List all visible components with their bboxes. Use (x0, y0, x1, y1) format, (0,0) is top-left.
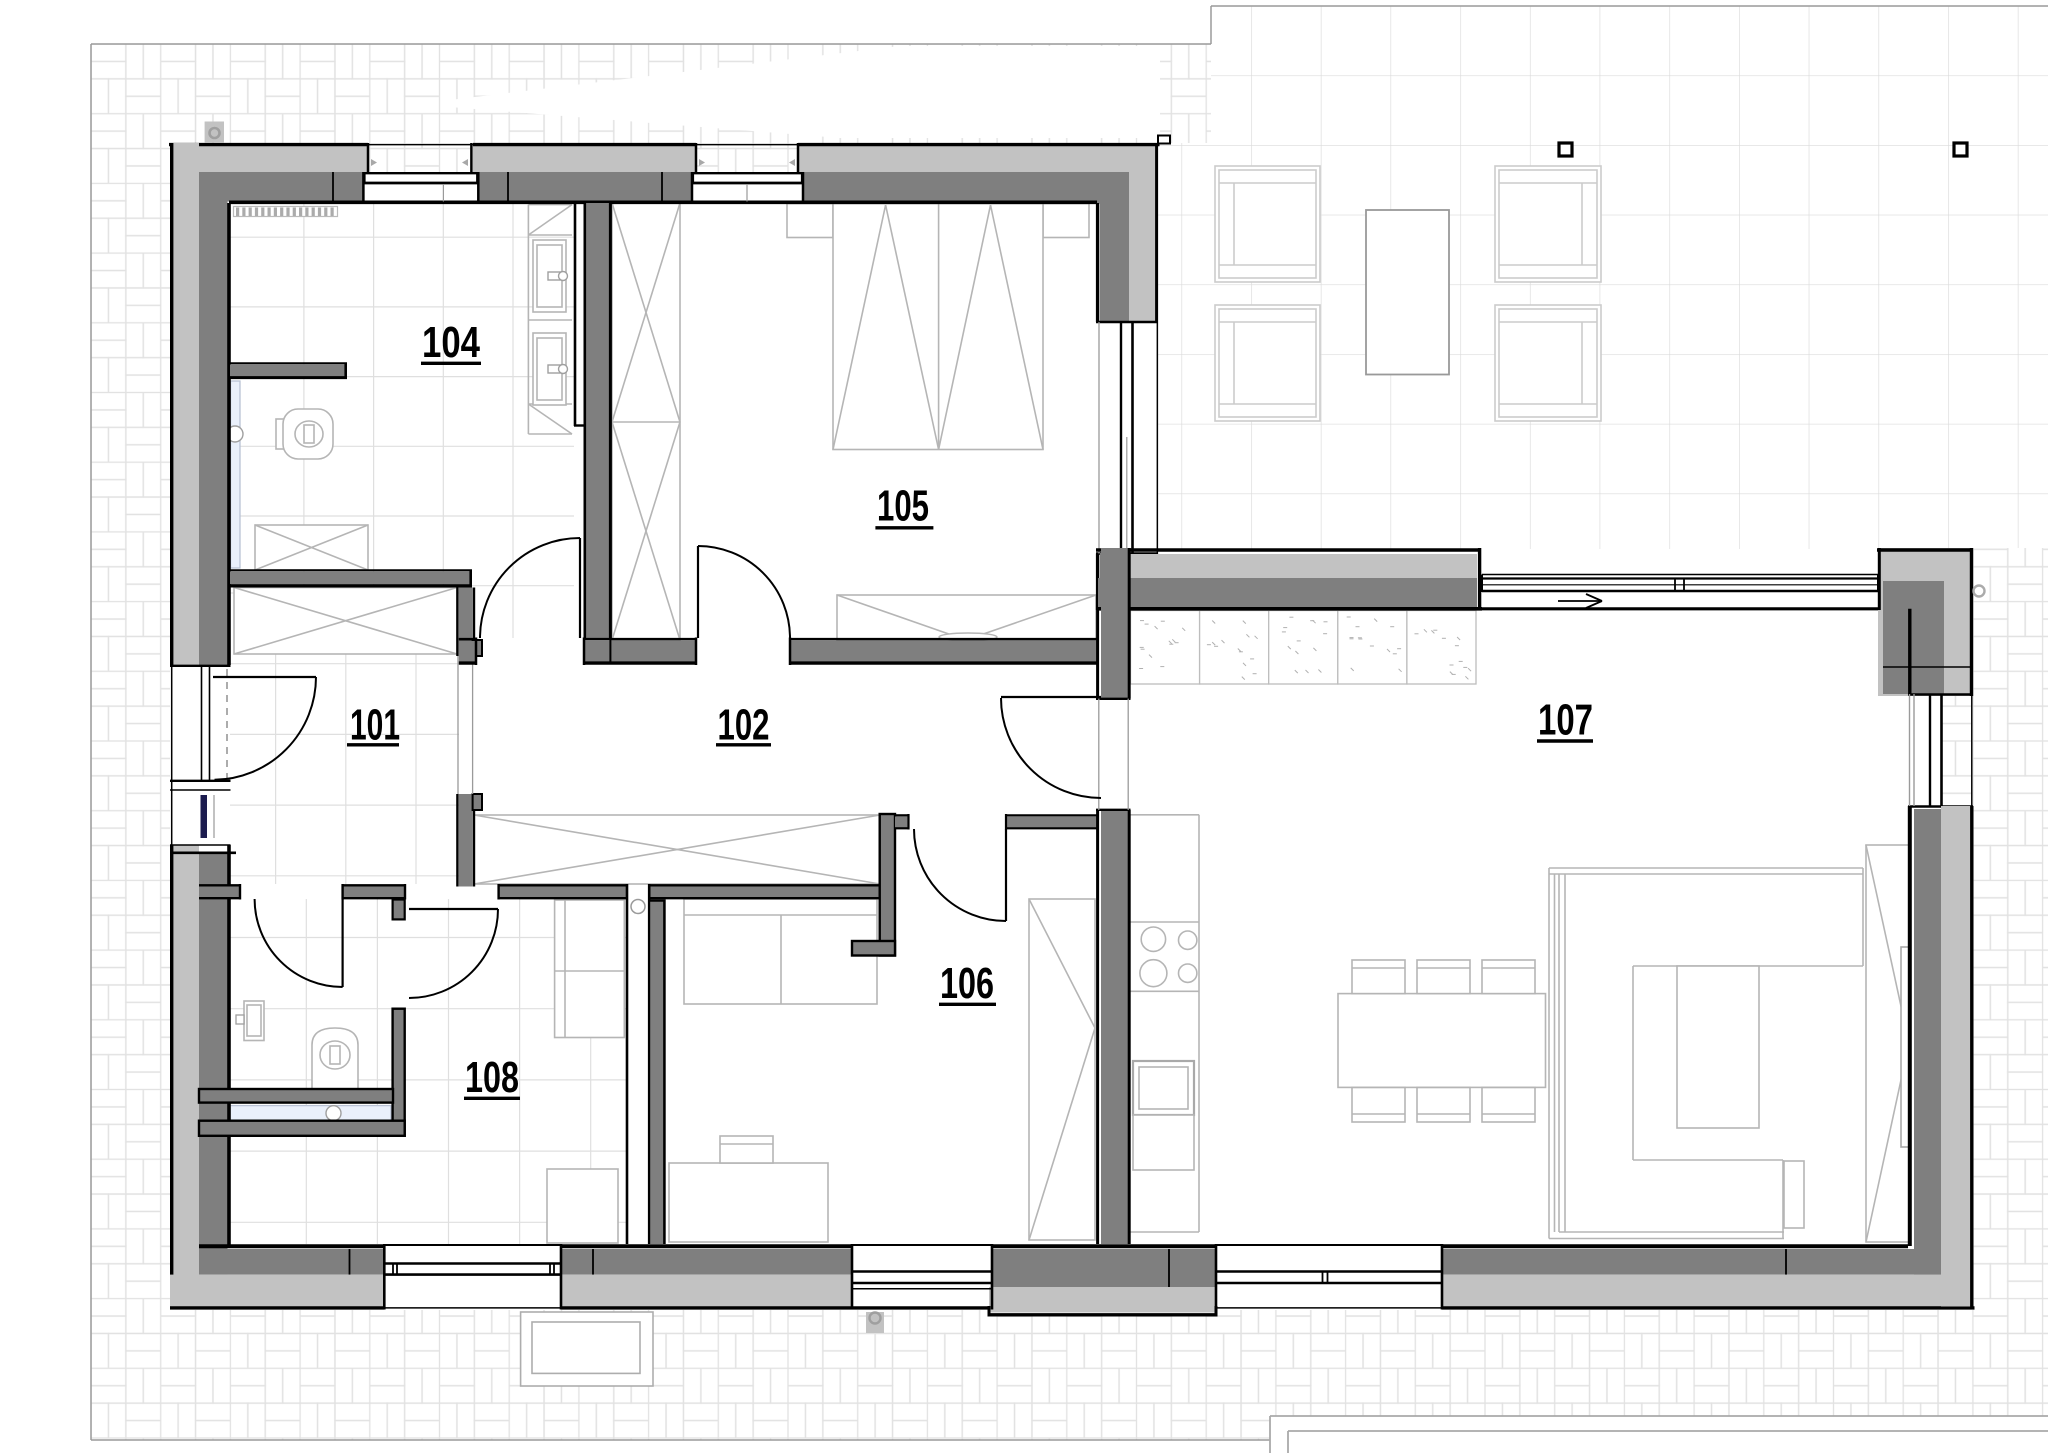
svg-text:101: 101 (350, 701, 400, 750)
svg-text:102: 102 (718, 701, 770, 750)
svg-text:108: 108 (465, 1053, 519, 1102)
svg-text:105: 105 (877, 482, 929, 531)
svg-text:106: 106 (940, 959, 994, 1008)
svg-text:104: 104 (422, 318, 480, 367)
svg-text:107: 107 (1538, 695, 1593, 744)
